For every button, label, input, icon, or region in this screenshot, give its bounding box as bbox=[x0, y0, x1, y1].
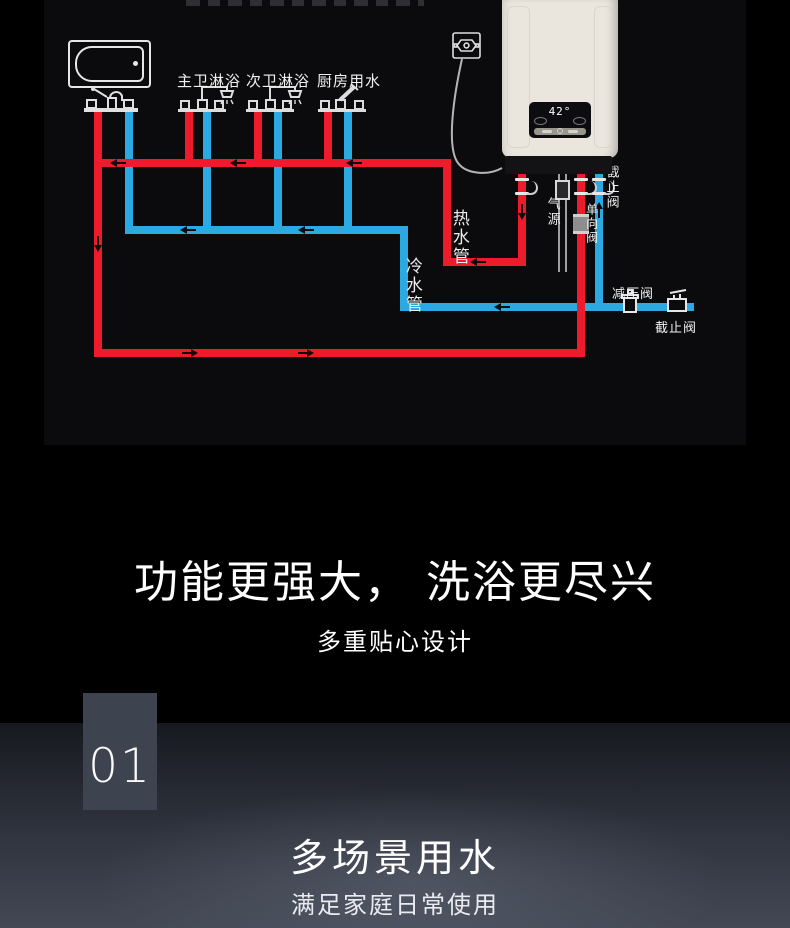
heater-pill-button bbox=[568, 130, 578, 133]
check-valve-label: 单向阀 bbox=[585, 203, 598, 245]
cold-pipe-kitchen bbox=[344, 112, 352, 234]
features-subtitle: 多重贴心设计 bbox=[0, 622, 790, 657]
flow-arrow-left-icon bbox=[494, 303, 510, 311]
power-socket-icon bbox=[452, 32, 481, 59]
flow-arrow-left-icon bbox=[346, 159, 362, 167]
cold-pipe-bathtub bbox=[125, 112, 133, 234]
cold-pipe-label: 冷水管 bbox=[402, 257, 420, 314]
flow-arrow-left-icon bbox=[180, 226, 196, 234]
gas-source-label: 气源 bbox=[545, 197, 559, 227]
hot-pipe-distribution bbox=[94, 159, 451, 167]
scene-subtitle: 满足家庭日常使用 bbox=[0, 885, 790, 920]
stop-valve-bottom-label: 截止阀 bbox=[655, 317, 697, 336]
flow-arrow-left-icon bbox=[110, 159, 126, 167]
cold-pipe-master-shower bbox=[203, 112, 211, 234]
flow-arrow-left-icon bbox=[230, 159, 246, 167]
heater-button-left-icon bbox=[534, 117, 547, 125]
hot-pipe-label: 热水管 bbox=[449, 209, 467, 266]
pressure-reducing-valve-label: 减压阀 bbox=[612, 283, 654, 302]
heater-base bbox=[505, 156, 612, 174]
flow-arrow-right-icon bbox=[298, 349, 314, 357]
clipped-title-fragment bbox=[186, 0, 424, 6]
heater-display: 42° bbox=[529, 102, 591, 138]
fixture-label-master-shower: 主卫淋浴 bbox=[177, 70, 241, 91]
heater-button-right-icon bbox=[573, 117, 586, 125]
heater-control-bar bbox=[534, 128, 586, 135]
fixture-label-kitchen: 厨房用水 bbox=[317, 70, 381, 91]
hot-pipe-bathtub bbox=[94, 112, 102, 357]
features-title: 功能更强大， 洗浴更尽兴 bbox=[0, 546, 790, 610]
stop-valve-icon bbox=[662, 289, 692, 315]
flow-arrow-down-icon bbox=[518, 204, 526, 220]
scene-index-box: 01 bbox=[83, 693, 157, 810]
heater-pill-button bbox=[542, 130, 552, 133]
heater-power-ring-icon bbox=[557, 128, 563, 134]
recirculation-pipe bbox=[577, 168, 585, 357]
fixture-label-second-shower: 次卫淋浴 bbox=[246, 70, 310, 91]
flow-arrow-down-icon bbox=[94, 236, 102, 252]
page: 主卫淋浴 次卫淋浴 厨房用水 热水管 冷水管 截止阀 气源 单向阀 减压阀 截止… bbox=[0, 0, 790, 928]
scene-title: 多场景用水 bbox=[0, 827, 790, 882]
flow-arrow-right-icon bbox=[182, 349, 198, 357]
flow-arrow-left-icon bbox=[298, 226, 314, 234]
heater-left-panel bbox=[507, 6, 530, 148]
cold-pipe-distribution bbox=[125, 226, 408, 234]
flow-arrow-left-icon bbox=[470, 258, 486, 266]
heater-right-panel bbox=[594, 6, 612, 148]
bathtub-faucet-icon bbox=[80, 86, 142, 115]
recirculation-return-pipe bbox=[94, 349, 585, 357]
scene-index: 01 bbox=[83, 739, 157, 794]
heater-temp-readout: 42° bbox=[529, 105, 591, 118]
cold-pipe-second-shower bbox=[274, 112, 282, 234]
cold-pipe-main bbox=[400, 303, 694, 311]
bathtub-drain-dot bbox=[133, 61, 138, 66]
